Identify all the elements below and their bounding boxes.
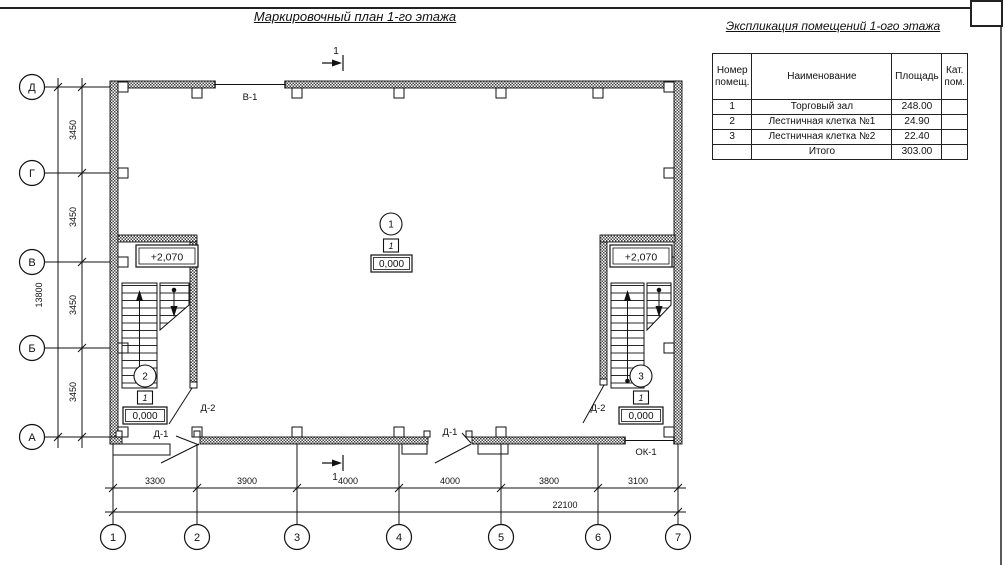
total-label: Итого: [752, 145, 892, 160]
room-number: 2: [142, 372, 148, 383]
drawing-sheet: Д Г В Б А 1 2 3 4 5 6 7: [0, 0, 1005, 565]
room-elevation: 0,000: [132, 411, 157, 422]
cell-name: Лестничная клетка №1: [752, 115, 892, 130]
header-number: Номер помещ.: [713, 54, 752, 100]
cell-area: 248.00: [892, 100, 942, 115]
axis-label: 7: [675, 532, 681, 544]
axis-label: Б: [28, 343, 35, 355]
cell-name: Лестничная клетка №2: [752, 130, 892, 145]
cell-category: [942, 115, 968, 130]
cell-area: 24.90: [892, 115, 942, 130]
entrance-steps: [113, 444, 508, 455]
stairwell-left: +2,070: [118, 235, 198, 388]
axis-label: А: [28, 432, 36, 444]
dim-value: 3450: [68, 295, 78, 315]
explication-table: Номер помещ. Наименование Площадь Кат. п…: [712, 53, 968, 160]
dim-value: 3100: [628, 476, 648, 486]
column-axis-labels: 1 2 3 4 5 6 7: [110, 532, 681, 544]
cell-category: [942, 130, 968, 145]
table-header-row: Номер помещ. Наименование Площадь Кат. п…: [713, 54, 968, 100]
dim-value: 3300: [145, 476, 165, 486]
bottom-dimension-labels: 3300 3900 4000 4000 3800 3100 22100: [145, 476, 648, 510]
door-label-d2: Д-2: [201, 403, 216, 414]
dim-value: 3450: [68, 120, 78, 140]
window-ok1: [625, 437, 674, 445]
dim-value: 3450: [68, 207, 78, 227]
total-area: 303.00: [892, 145, 942, 160]
explication-title: Экспликация помещений 1-ого этажа: [705, 19, 961, 33]
room-number: 1: [388, 220, 394, 231]
cell-number: 3: [713, 130, 752, 145]
axis-label: 3: [294, 532, 300, 544]
table-row: 3 Лестничная клетка №2 22.40: [713, 130, 968, 145]
room-type: 1: [638, 393, 643, 403]
explication-title-text: Экспликация помещений 1-ого этажа: [726, 19, 940, 33]
drawing-title: Маркировочный план 1-го этажа: [180, 9, 530, 24]
axis-label: Г: [29, 168, 35, 180]
row-axis-labels: Д Г В Б А: [28, 82, 36, 444]
axis-label: 1: [110, 532, 116, 544]
table-row: 1 Торговый зал 248.00: [713, 100, 968, 115]
upper-level-value: +2,070: [151, 252, 184, 264]
header-name: Наименование: [752, 54, 892, 100]
frame-zone-box: [971, 1, 1002, 26]
cell-area: 22.40: [892, 130, 942, 145]
cell-name: Торговый зал: [752, 100, 892, 115]
dim-value: 4000: [338, 476, 358, 486]
window-label-v1: В-1: [243, 92, 258, 103]
room-type: 1: [142, 393, 147, 403]
axis-label: 5: [498, 532, 504, 544]
room-elevation: 0,000: [628, 411, 653, 422]
header-area: Площадь: [892, 54, 942, 100]
upper-level-value: +2,070: [625, 252, 658, 264]
section-label: 1: [333, 46, 339, 57]
cell-number-empty: [713, 145, 752, 160]
room-marker-hall: 1 1 0,000: [371, 213, 412, 272]
dim-total-value: 22100: [552, 500, 577, 510]
bottom-dimension-lines: [105, 484, 686, 516]
axis-label: В: [28, 257, 35, 269]
door-label-d1: Д-1: [154, 429, 169, 440]
axis-label: Д: [28, 82, 36, 94]
window-label-ok1: ОК-1: [635, 447, 656, 458]
axis-label: 6: [595, 532, 601, 544]
dim-value: 4000: [440, 476, 460, 486]
room-elevation: 0,000: [379, 259, 404, 270]
axis-label: 4: [396, 532, 402, 544]
room-type: 1: [388, 241, 393, 251]
doors: [161, 385, 604, 463]
section-label: 1: [332, 472, 338, 483]
axis-label: 2: [194, 532, 200, 544]
dim-value: 3800: [539, 476, 559, 486]
section-mark-top: 1: [322, 46, 343, 71]
table-total-row: Итого 303.00: [713, 145, 968, 160]
cell-category-empty: [942, 145, 968, 160]
door-label-d1: Д-1: [443, 427, 458, 438]
header-category: Кат. пом.: [942, 54, 968, 100]
drawing-title-text: Маркировочный план 1-го этажа: [254, 9, 456, 24]
cell-category: [942, 100, 968, 115]
dim-value: 3900: [237, 476, 257, 486]
opening-labels: Д-1 Д-1 Д-2 Д-2 В-1 ОК-1: [154, 92, 657, 458]
door-label-d2: Д-2: [591, 403, 606, 414]
cell-number: 2: [713, 115, 752, 130]
cell-number: 1: [713, 100, 752, 115]
window-v1: [215, 81, 285, 89]
room-number: 3: [638, 372, 644, 383]
dim-value: 3450: [68, 382, 78, 402]
table-row: 2 Лестничная клетка №1 24.90: [713, 115, 968, 130]
dim-total-value: 13800: [34, 282, 44, 307]
